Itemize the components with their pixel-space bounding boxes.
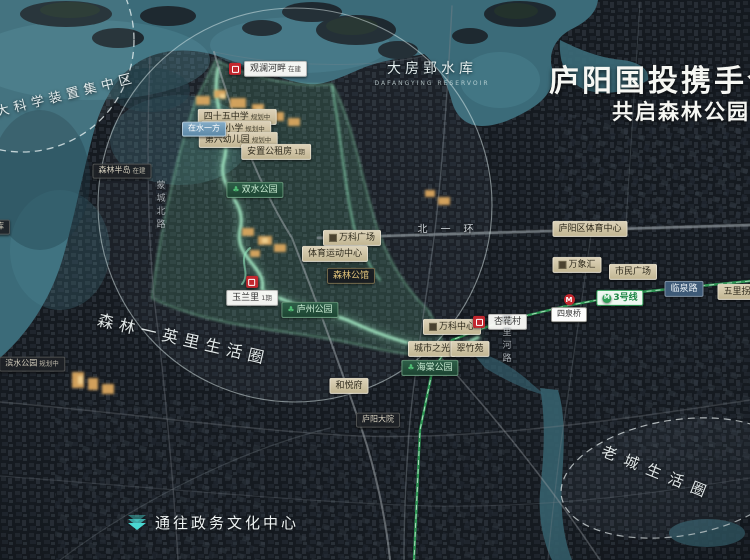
label-station-siquanqiao: M四泉桥 [551, 294, 587, 322]
label-senlin-gongguan-pill: 森林公馆 [327, 268, 375, 284]
headline-line2: 共启森林公园2.0时代 [612, 96, 750, 126]
label-road-linquan-text: 临泉路 [670, 283, 697, 295]
project-logo-icon [229, 63, 241, 75]
label-yulanli-status-tag: 1期 [261, 294, 272, 303]
label-public-housing: 安置公租房1期 [241, 144, 311, 160]
label-senlin-bandao-text: 森林半岛 [99, 166, 131, 177]
label-road-mengchengbeilu: 蒙城北路 [154, 180, 167, 232]
label-wanxianghui-pill: 万象汇 [552, 257, 601, 273]
label-road-linquan: 临泉路 [664, 281, 703, 297]
label-cuizhuyuan-pill: 翠竹苑 [450, 341, 489, 357]
label-senlin-gongguan: 森林公馆 [327, 268, 375, 284]
tree-icon: ♣ [287, 306, 294, 314]
label-binshui-park: 滨水公园规划中 [0, 357, 65, 372]
headline-line1: 庐阳国投携手合作 [549, 56, 750, 100]
label-heyuefu: 和悦府 [329, 378, 368, 394]
label-reservoir-west-pill: 水库 [0, 220, 10, 235]
tree-icon: ♣ [232, 186, 239, 194]
label-metro-line3: M3号线 [596, 290, 643, 306]
building-icon [329, 234, 337, 242]
reservoir-label: 大房郢水库 DAFANGYING RESERVOIR [374, 58, 489, 87]
label-shuangshui-park-text: 双水公园 [242, 184, 278, 196]
label-cuizhuyuan-text: 翠竹苑 [456, 343, 483, 355]
label-wulipai: 五里拐 [717, 284, 750, 300]
label-senlin-bandao: 森林半岛在建 [93, 164, 152, 179]
label-guanlan-hepan-pill: 观澜河畔在建 [244, 61, 307, 77]
label-luyang-sports-center-text: 庐阳区体育中心 [558, 223, 621, 235]
building-icon [429, 323, 437, 331]
label-zaishuiyifang-text: 在水一方 [188, 124, 220, 135]
label-station-siquanqiao-pill: 四泉桥 [551, 307, 587, 322]
metro-station-icon: M [564, 294, 575, 305]
label-shimin-plaza-text: 市民广场 [615, 266, 651, 278]
label-road-silihelu: 四里河路 [500, 314, 513, 366]
label-haitang-park: ♣海棠公园 [401, 360, 458, 376]
label-shimin-plaza-pill: 市民广场 [609, 264, 657, 280]
label-luzhou-park-pill: ♣庐州公园 [281, 302, 338, 318]
label-guanlan-hepan: 观澜河畔在建 [229, 61, 307, 77]
label-heyuefu-pill: 和悦府 [329, 378, 368, 394]
label-public-housing-status-tag: 1期 [294, 148, 305, 157]
label-shuangshui-park: ♣双水公园 [226, 182, 283, 198]
label-yulanli: 玉兰里1期 [226, 276, 278, 306]
building-icon [558, 261, 566, 269]
label-road-beiyihuan-text: 北一环 [418, 221, 487, 236]
label-zaishuiyifang-pill: 在水一方 [182, 122, 226, 137]
label-haitang-park-text: 海棠公园 [417, 362, 453, 374]
project-logo-icon [473, 316, 485, 328]
label-sports-center-pill: 体育运动中心 [302, 246, 368, 262]
label-senlin-bandao-status-tag: 在建 [133, 167, 146, 176]
reservoir-name-en: DAFANGYING RESERVOIR [374, 80, 489, 87]
reservoir-name-cn: 大房郢水库 [374, 58, 489, 78]
label-luzhou-park-text: 庐州公园 [297, 304, 333, 316]
label-luyang-dayuan-pill: 庐阳大院 [356, 413, 400, 428]
label-wanke-plaza-text: 万科广场 [339, 232, 375, 244]
footer-note-text: 通往政务文化中心 [155, 512, 299, 533]
label-cuizhuyuan: 翠竹苑 [450, 341, 489, 357]
label-binshui-park-status-tag: 规划中 [39, 360, 59, 369]
label-wanxianghui: 万象汇 [552, 257, 601, 273]
label-reservoir-west: 水库 [0, 220, 10, 235]
label-yulanli-pill: 玉兰里1期 [226, 290, 278, 306]
label-luyang-dayuan-text: 庐阳大院 [362, 415, 394, 426]
label-shuangshui-park-pill: ♣双水公园 [226, 182, 283, 198]
label-chengshizhiguang: 城市之光 [408, 341, 456, 357]
label-wanke-plaza: 万科广场 [323, 230, 381, 246]
label-wulipai-text: 五里拐 [723, 286, 750, 298]
label-zaishuiyifang: 在水一方 [182, 122, 226, 137]
label-binshui-park-pill: 滨水公园规划中 [0, 357, 65, 372]
metro-line-icon: M [602, 293, 611, 302]
label-luyang-dayuan: 庐阳大院 [356, 413, 400, 428]
label-public-housing-pill: 安置公租房1期 [241, 144, 311, 160]
promo-map-stage: 庐阳国投携手合作 共启森林公园2.0时代 大房郢水库 DAFANGYING RE… [0, 0, 750, 560]
label-road-linquan-pill: 临泉路 [664, 281, 703, 297]
label-guanlan-hepan-status-tag: 在建 [288, 65, 301, 74]
label-sports-center: 体育运动中心 [302, 246, 368, 262]
label-binshui-park-text: 滨水公园 [5, 359, 37, 370]
label-senlin-bandao-pill: 森林半岛在建 [93, 164, 152, 179]
label-metro-line3-pill: M3号线 [596, 290, 643, 306]
label-chengshizhiguang-pill: 城市之光 [408, 341, 456, 357]
label-haitang-park-pill: ♣海棠公园 [401, 360, 458, 376]
label-yulanli-text: 玉兰里 [232, 292, 259, 304]
label-road-mengchengbeilu-text: 蒙城北路 [154, 180, 167, 232]
label-chengshizhiguang-text: 城市之光 [414, 343, 450, 355]
label-public-housing-text: 安置公租房 [247, 146, 292, 158]
label-wanxianghui-text: 万象汇 [568, 259, 595, 271]
footer-note: 通往政务文化中心 [128, 512, 299, 533]
project-logo-icon [246, 276, 258, 288]
label-senlin-gongguan-text: 森林公馆 [333, 270, 369, 282]
label-guanlan-hepan-text: 观澜河畔 [250, 63, 286, 75]
label-wanke-plaza-pill: 万科广场 [323, 230, 381, 246]
chevron-down-icon [128, 515, 146, 530]
label-heyuefu-text: 和悦府 [335, 380, 362, 392]
label-road-silihelu-text: 四里河路 [500, 314, 513, 366]
label-wulipai-pill: 五里拐 [717, 284, 750, 300]
label-station-siquanqiao-text: 四泉桥 [557, 309, 581, 320]
label-luyang-sports-center: 庐阳区体育中心 [552, 221, 627, 237]
tree-icon: ♣ [407, 364, 414, 372]
label-wanke-center-text: 万科中心 [439, 321, 475, 333]
label-sports-center-text: 体育运动中心 [308, 248, 362, 260]
label-luzhou-park: ♣庐州公园 [281, 302, 338, 318]
label-reservoir-west-text: 水库 [0, 222, 4, 233]
label-luyang-sports-center-pill: 庐阳区体育中心 [552, 221, 627, 237]
label-metro-line3-text: 3号线 [613, 292, 637, 304]
label-road-beiyihuan: 北一环 [418, 221, 487, 236]
label-shimin-plaza: 市民广场 [609, 264, 657, 280]
